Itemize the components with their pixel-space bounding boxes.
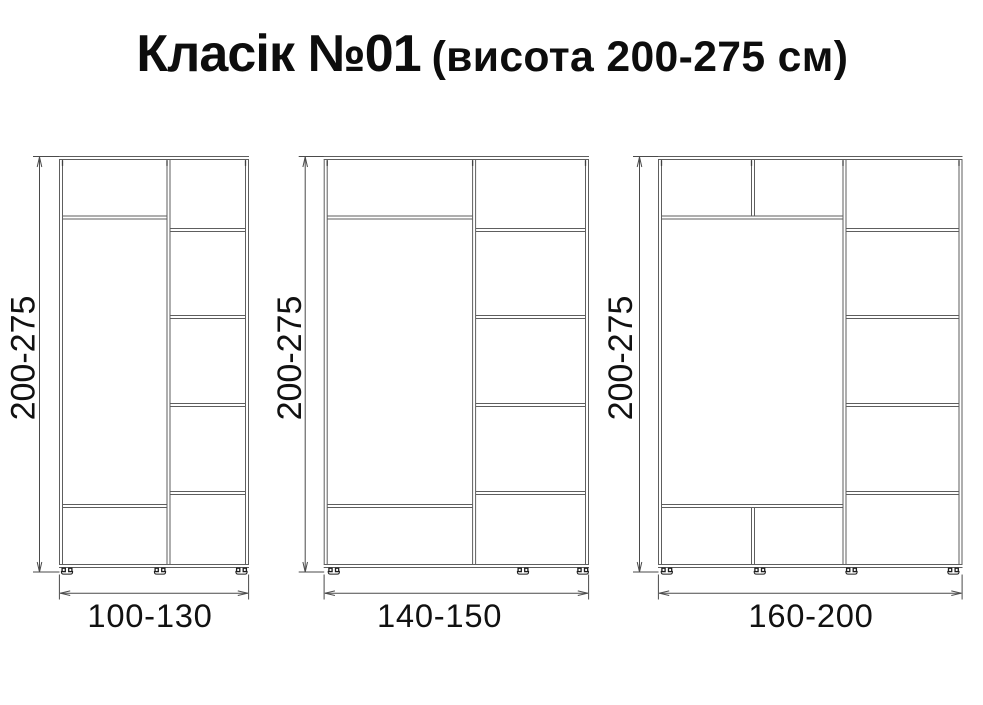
svg-text:Класік №01(висота 200-275 см): Класік №01(висота 200-275 см) xyxy=(136,25,848,83)
svg-text:160-200: 160-200 xyxy=(748,597,873,634)
svg-text:140-150: 140-150 xyxy=(377,597,502,634)
svg-text:200-275: 200-275 xyxy=(271,296,309,421)
svg-text:100-130: 100-130 xyxy=(87,597,212,634)
svg-text:200-275: 200-275 xyxy=(602,296,640,421)
svg-text:200-275: 200-275 xyxy=(5,296,43,421)
